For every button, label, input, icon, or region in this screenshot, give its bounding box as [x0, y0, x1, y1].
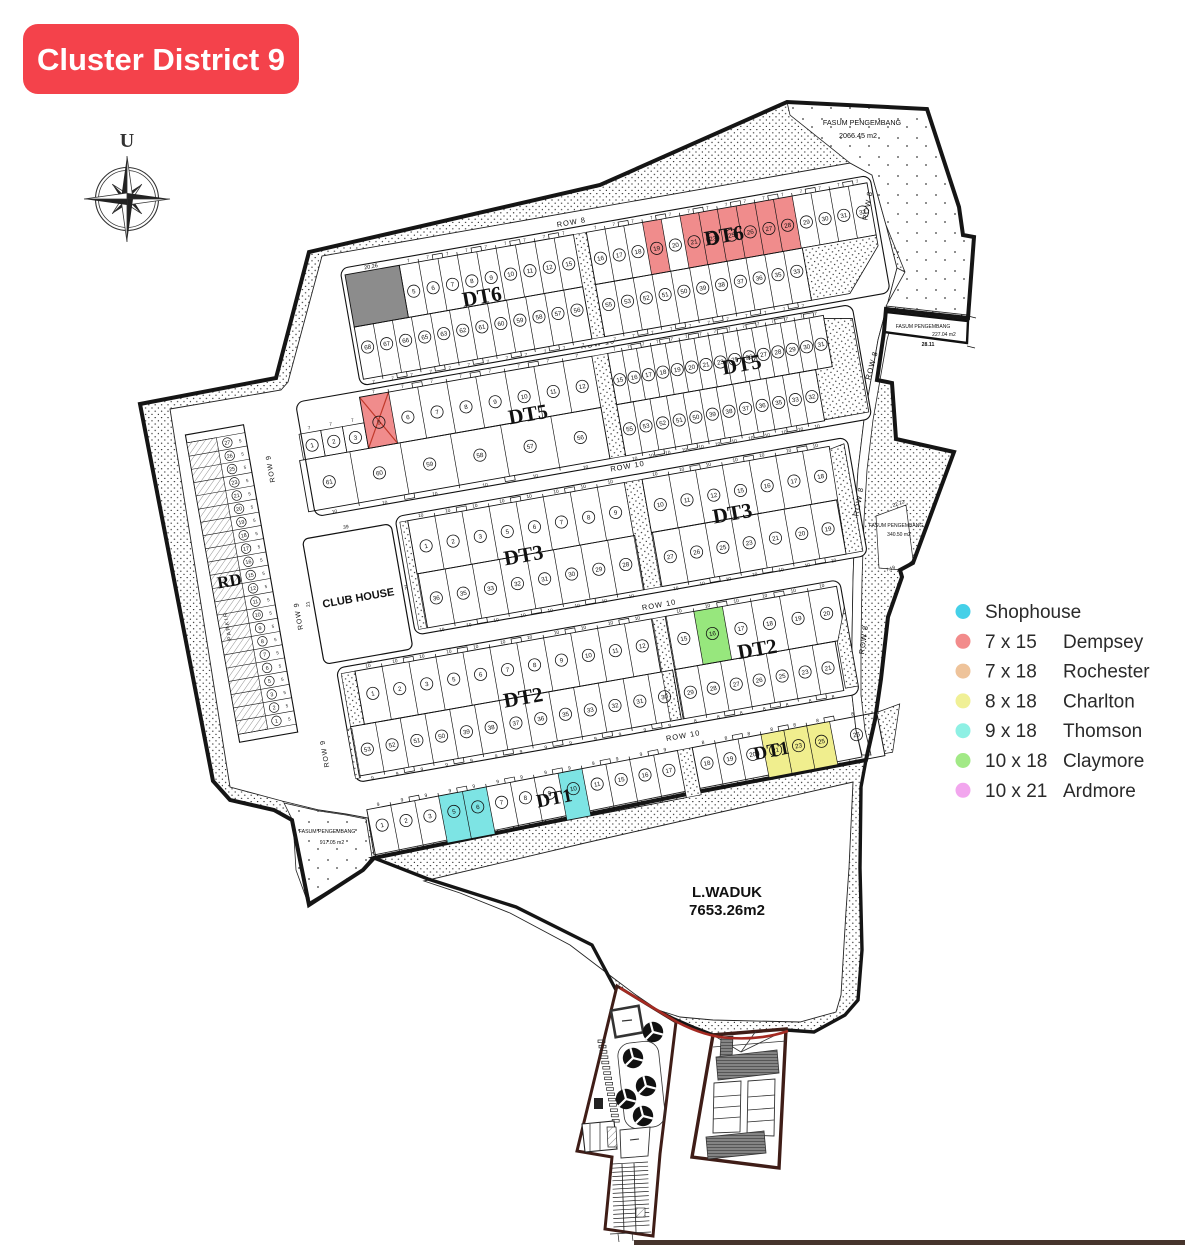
- svg-text:Dempsey: Dempsey: [1063, 632, 1144, 653]
- svg-text:Claymore: Claymore: [1063, 751, 1144, 772]
- svg-text:FASUM PENGEMBANG: FASUM PENGEMBANG: [896, 324, 951, 330]
- svg-text:17: 17: [243, 546, 250, 553]
- svg-text:2066.45 m2: 2066.45 m2: [839, 131, 877, 140]
- svg-text:10: 10: [254, 612, 261, 619]
- svg-text:9 x 18: 9 x 18: [985, 721, 1037, 742]
- svg-text:28.11: 28.11: [922, 342, 935, 348]
- svg-text:U: U: [120, 130, 134, 152]
- svg-text:917.05 m2: 917.05 m2: [320, 840, 345, 846]
- svg-text:26: 26: [226, 453, 233, 460]
- svg-text:FASUM PENGEMBANG: FASUM PENGEMBANG: [869, 523, 924, 529]
- svg-text:Rochester: Rochester: [1063, 662, 1150, 683]
- svg-text:Thomson: Thomson: [1063, 721, 1142, 742]
- svg-text:21: 21: [233, 493, 240, 500]
- svg-text:10 x 21: 10 x 21: [985, 781, 1047, 802]
- svg-text:FASUM PENGEMBANG: FASUM PENGEMBANG: [299, 829, 356, 835]
- svg-text:7653.26m2: 7653.26m2: [689, 902, 765, 919]
- svg-text:27: 27: [224, 440, 231, 447]
- svg-text:227.04 m2: 227.04 m2: [932, 332, 956, 338]
- svg-text:12: 12: [250, 586, 257, 593]
- svg-text:19: 19: [238, 520, 245, 527]
- svg-text:15: 15: [247, 573, 254, 580]
- svg-text:10 x 18: 10 x 18: [985, 751, 1047, 772]
- svg-text:37.85: 37.85: [923, 313, 936, 319]
- svg-text:7 x 18: 7 x 18: [985, 662, 1037, 683]
- svg-text:16: 16: [245, 559, 252, 566]
- svg-text:20: 20: [236, 506, 243, 513]
- svg-text:Cluster District 9: Cluster District 9: [37, 42, 285, 77]
- svg-text:8 x 18: 8 x 18: [985, 691, 1037, 712]
- svg-text:L.WADUK: L.WADUK: [692, 884, 762, 901]
- svg-text:18: 18: [240, 533, 247, 540]
- svg-text:11: 11: [252, 599, 259, 606]
- svg-text:Charlton: Charlton: [1063, 691, 1135, 712]
- svg-text:Shophouse: Shophouse: [985, 602, 1081, 623]
- svg-text:7 x 15: 7 x 15: [985, 632, 1037, 653]
- svg-text:23: 23: [231, 480, 238, 487]
- svg-text:Ardmore: Ardmore: [1063, 781, 1136, 802]
- svg-text:FASUM PENGEMBANG: FASUM PENGEMBANG: [823, 118, 902, 127]
- svg-text:340.50 m2: 340.50 m2: [887, 532, 911, 538]
- svg-text:25: 25: [229, 466, 236, 473]
